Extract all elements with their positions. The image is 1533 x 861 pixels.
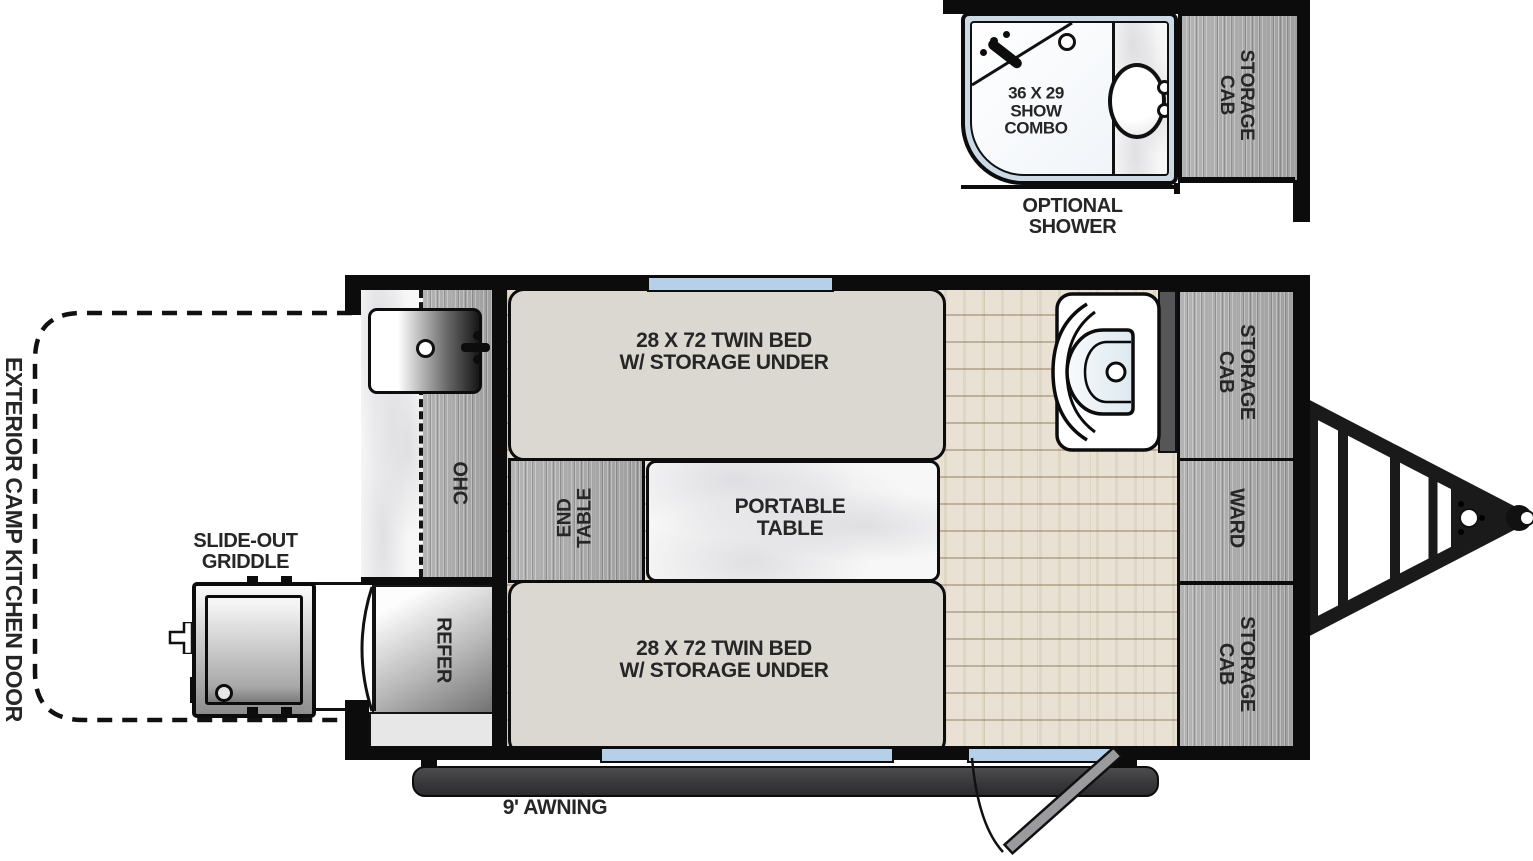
inset-wall-tick (1174, 183, 1180, 194)
entry-step (369, 712, 495, 750)
refer-label: REFER (433, 617, 454, 683)
ohc-label: OHC (449, 461, 470, 504)
griddle-side-bar (190, 677, 195, 703)
shower-combo: 36 X 29 SHOW COMBO (961, 12, 1178, 185)
trailer-hitch (1303, 398, 1533, 643)
body-left-wall-top (345, 275, 361, 315)
faucet-knob (1157, 80, 1169, 95)
optional-shower-caption: OPTIONAL SHOWER (990, 196, 1155, 238)
body-left-wall-corner (345, 700, 369, 760)
twin-bed-bottom-label: 28 X 72 TWIN BED W/ STORAGE UNDER (619, 638, 828, 682)
shower-combo-interior: 36 X 29 SHOW COMBO (970, 21, 1169, 176)
shower-size-label: 36 X 29 SHOW COMBO (1004, 84, 1067, 137)
griddle-gas-plug-icon (168, 622, 194, 654)
storage-cab-top-label: STORAGE CAB (1215, 324, 1257, 420)
awning-label: 9' AWNING (470, 797, 640, 819)
shower-spray-dot (990, 37, 998, 45)
exterior-camp-kitchen-door-label: EXTERIOR CAMP KITCHEN DOOR (1, 357, 25, 687)
vanity-sink-basin (1108, 63, 1166, 139)
shower-spray-dot (980, 49, 987, 56)
sink-faucet-icon (461, 343, 490, 352)
griddle (192, 582, 316, 718)
wardrobe-label: WARD (1226, 488, 1247, 548)
griddle-tab (247, 576, 258, 583)
inset-cabinet-bottom-line (1178, 177, 1295, 183)
portable-table-label: PORTABLE TABLE (735, 496, 846, 540)
twin-bed-top-label: 28 X 72 TWIN BED W/ STORAGE UNDER (619, 330, 828, 374)
shower-drain (1058, 33, 1076, 51)
toilet-fixture (1043, 290, 1173, 455)
top-window (647, 276, 834, 292)
sink-drain (416, 339, 435, 358)
griddle-tab (281, 576, 292, 583)
inset-storage-cab-label: STORAGE CAB (1216, 50, 1256, 141)
storage-cab-bottom-label: STORAGE CAB (1215, 616, 1257, 712)
main-divider-wall (492, 290, 507, 746)
sink-faucet-knob (473, 355, 482, 364)
refrigerator-door-arc (346, 585, 376, 713)
griddle-tab (281, 707, 292, 714)
sink-faucet-knob (473, 331, 482, 340)
shower-bottom-line (961, 185, 1178, 189)
rv-floorplan-canvas: EXTERIOR CAMP KITCHEN DOOR SLIDE-OUT GRI… (0, 0, 1533, 861)
griddle-knob (215, 684, 233, 702)
faucet-knob (1157, 103, 1169, 118)
slide-out-griddle-label: SLIDE-OUT GRIDDLE (163, 531, 328, 573)
bottom-window (600, 747, 894, 763)
shower-spray-dot (1003, 31, 1010, 38)
body-right-wall (1293, 275, 1310, 760)
twin-bed-top (508, 288, 946, 461)
kitchen-divider-line (361, 577, 507, 585)
griddle-tab (247, 707, 258, 714)
end-table-label: END TABLE (555, 488, 595, 548)
entry-door-swing (950, 744, 1140, 861)
